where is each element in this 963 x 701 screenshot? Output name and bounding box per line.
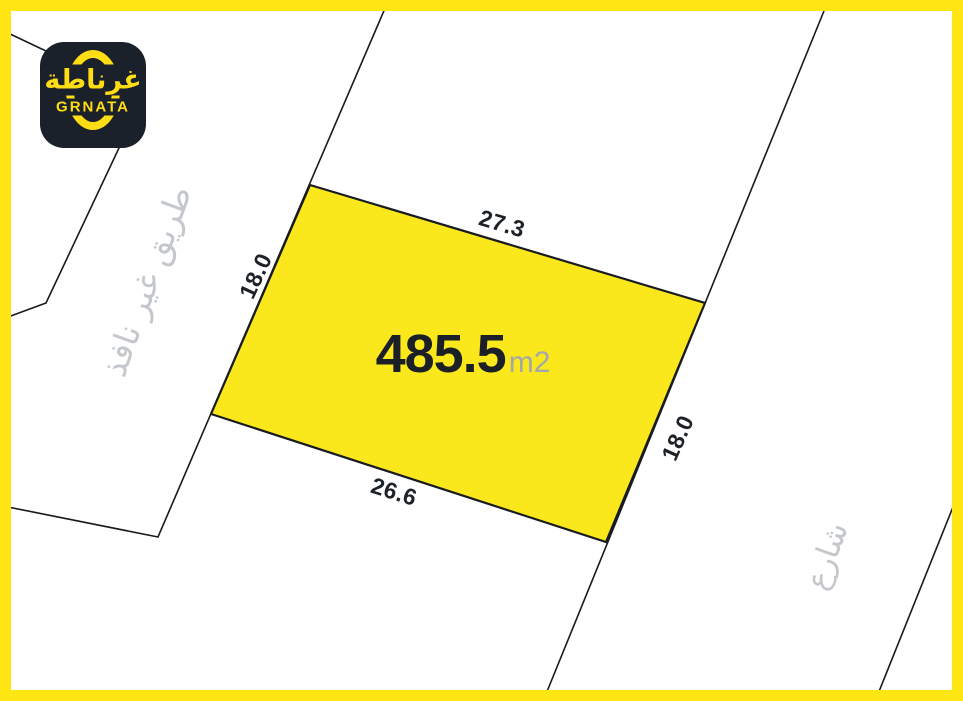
plot-area-label: 485.5 m2	[376, 327, 551, 381]
logo-latin-wordmark: GRNATA	[53, 99, 133, 116]
grnata-logo: غرناطة GRNATA	[40, 42, 146, 148]
plot-area-value: 485.5	[376, 327, 506, 381]
plot-area-unit: m2	[509, 348, 551, 378]
logo-arabic-wordmark: غرناطة	[40, 65, 145, 96]
plot-map-canvas: غرناطة GRNATA 27.3 18.0 18.0 26.6 طريق غ…	[0, 0, 963, 701]
